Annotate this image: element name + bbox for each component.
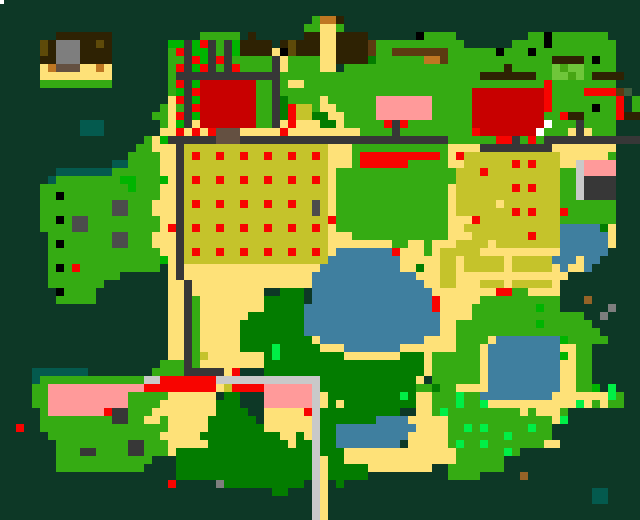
island-map-canvas[interactable] xyxy=(0,0,640,520)
island-map xyxy=(0,0,640,520)
